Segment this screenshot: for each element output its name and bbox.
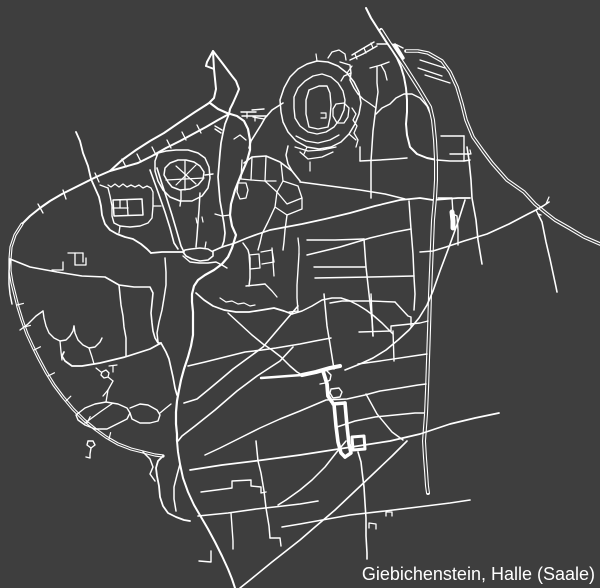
- svg-text:Giebichenstein, Halle (Saale): Giebichenstein, Halle (Saale): [362, 564, 595, 584]
